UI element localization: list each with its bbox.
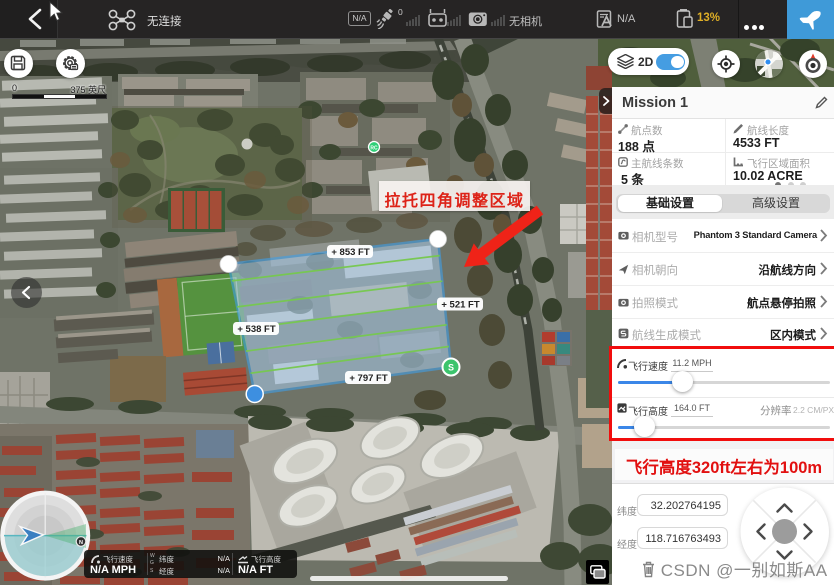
- svg-text:RC: RC: [370, 146, 378, 152]
- svg-text:S: S: [448, 363, 454, 373]
- svg-text:N: N: [79, 540, 83, 546]
- svg-text:+ 521 FT: + 521 FT: [441, 300, 479, 311]
- svg-text:+ 797 FT: + 797 FT: [349, 373, 387, 384]
- svg-text:+ 538 FT: + 538 FT: [237, 324, 275, 335]
- svg-text:+ 853 FT: + 853 FT: [331, 247, 369, 258]
